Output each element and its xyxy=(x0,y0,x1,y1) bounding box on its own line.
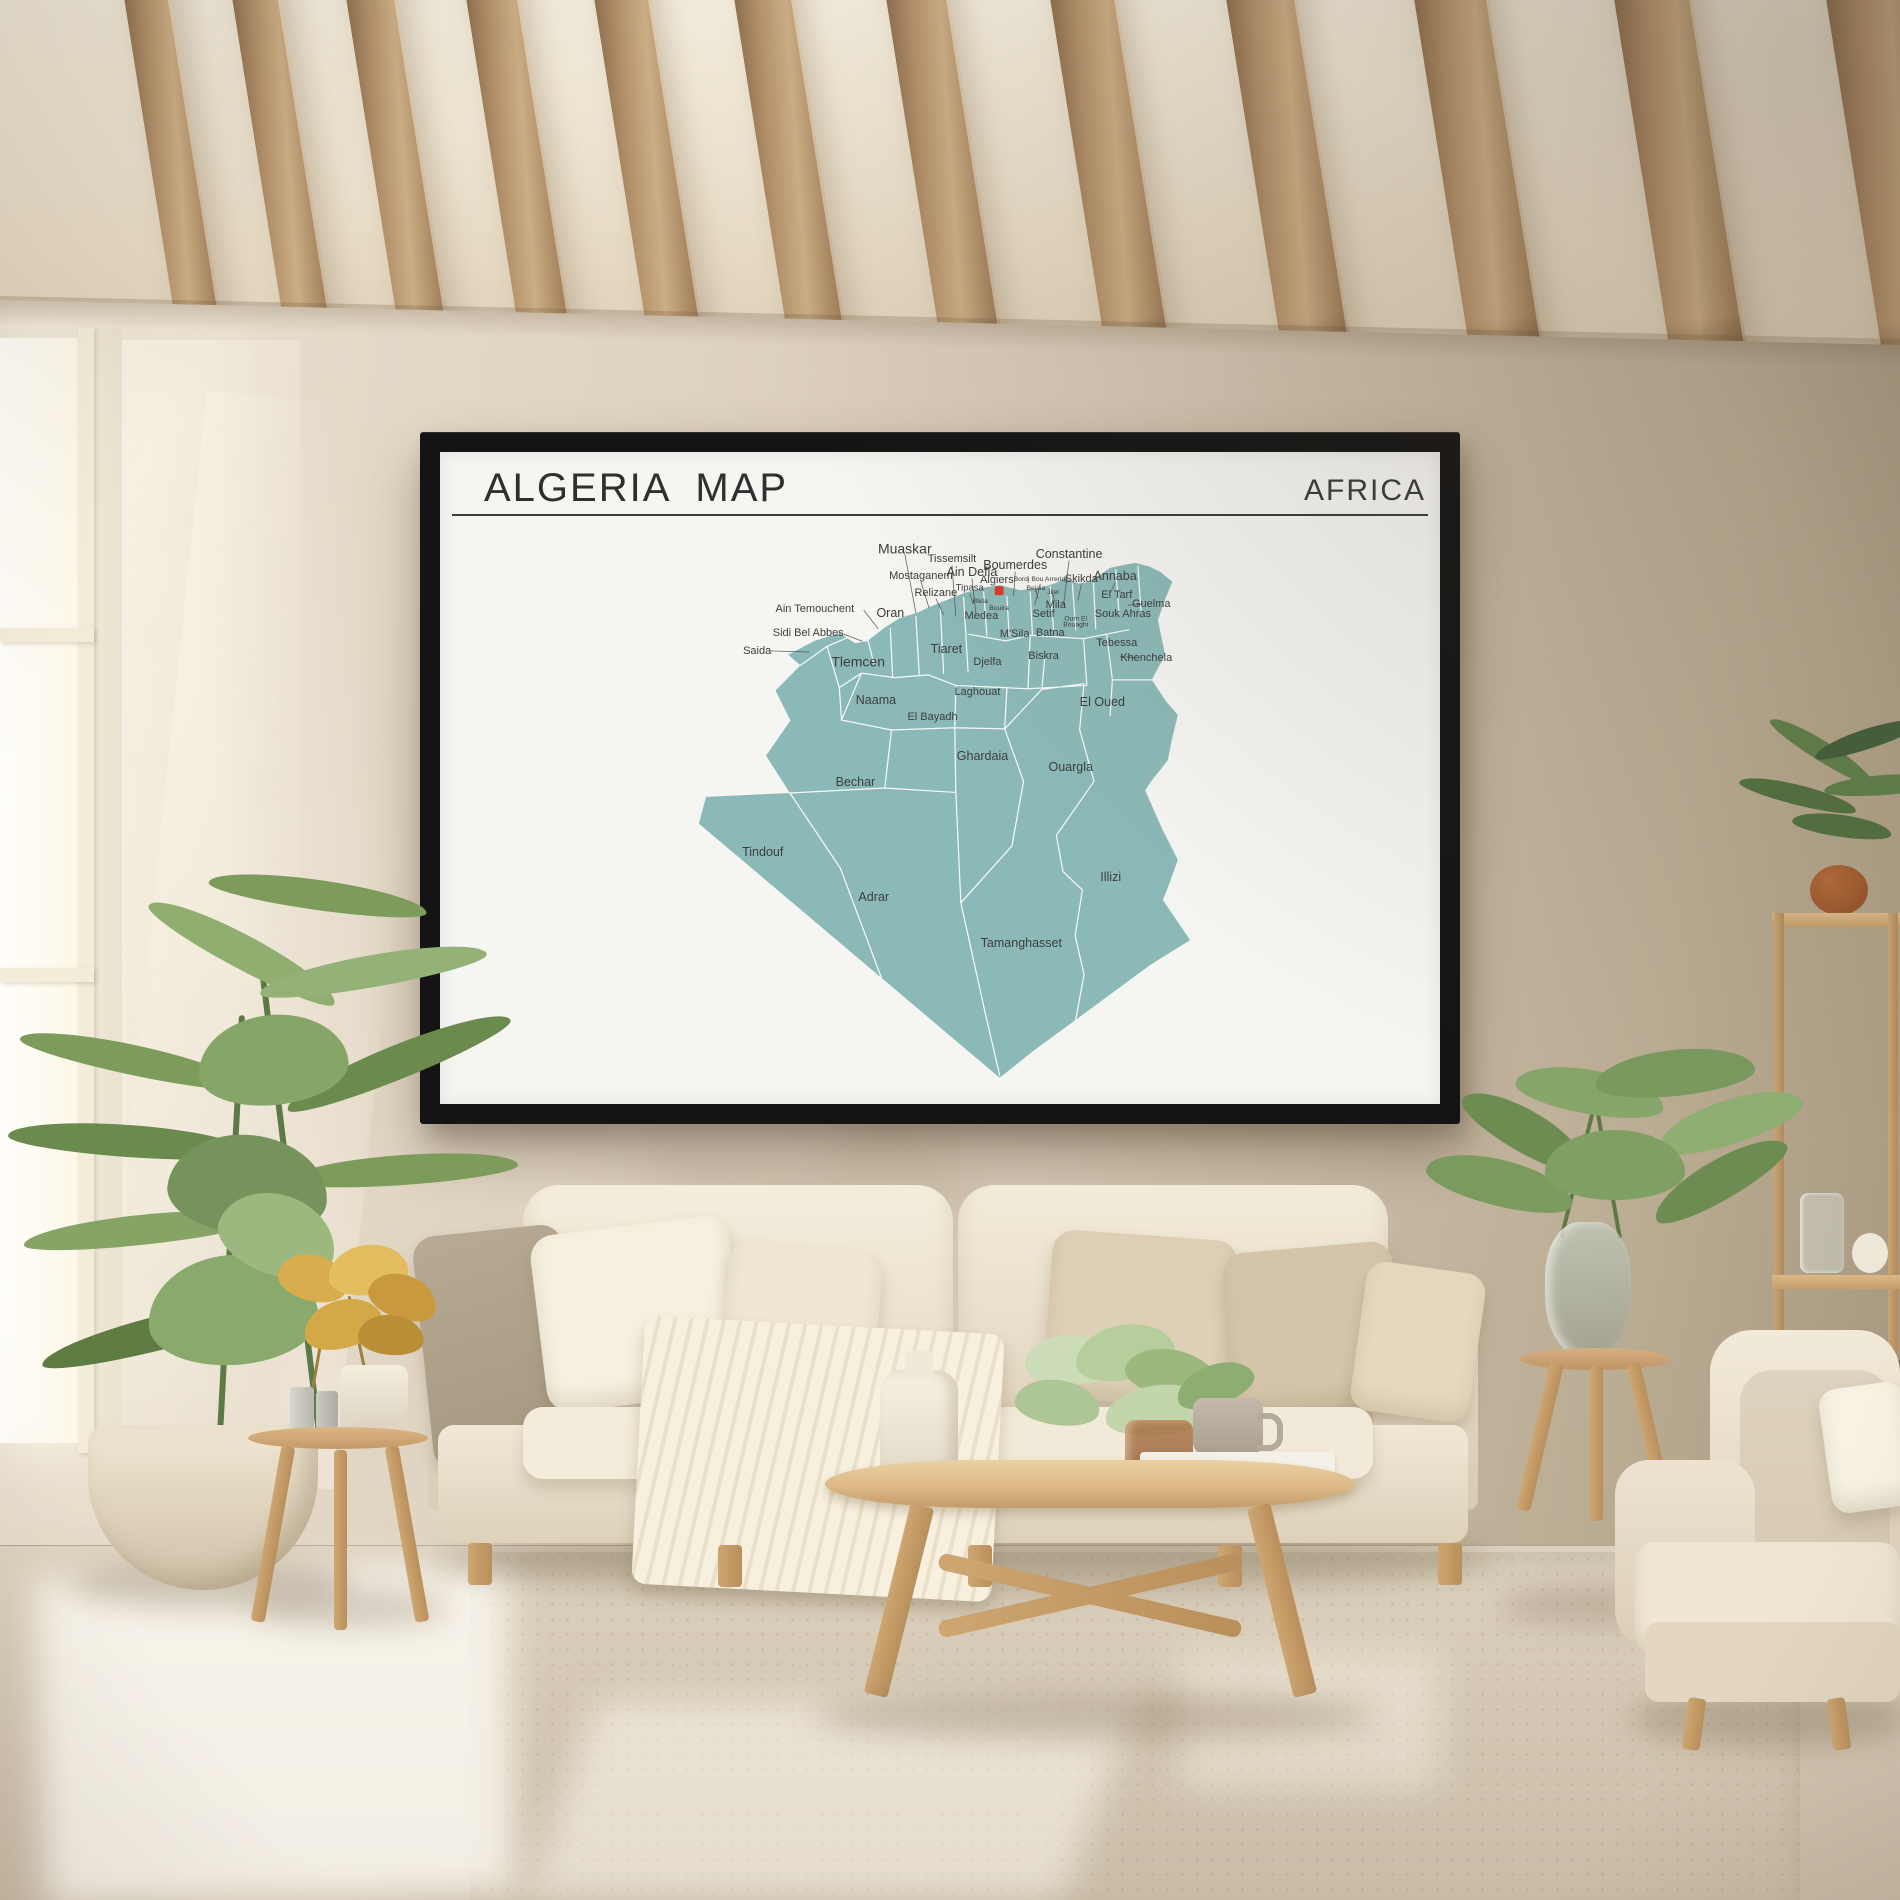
map-label-oran: Oran xyxy=(876,608,904,620)
map-label-tlemcen: Tlemcen xyxy=(831,655,885,668)
armchair-leg xyxy=(1826,1697,1851,1751)
armchair-skirt xyxy=(1645,1622,1900,1702)
map-label-muaskar: Muaskar xyxy=(878,543,932,556)
map-label-adrar: Adrar xyxy=(858,892,889,904)
map-label-jijel: Jijel xyxy=(1047,590,1059,596)
plant-leaf xyxy=(1791,808,1893,844)
ceiling-beam xyxy=(1409,0,1545,363)
map-label-relizane: Relizane xyxy=(914,588,957,598)
living-room-scene: ALGERIA MAP AFRICA MuaskarTissemsiltAin … xyxy=(0,0,1900,1900)
shelf-board xyxy=(1772,913,1900,927)
map-label-ain-temouchent: Ain Temouchent xyxy=(776,604,855,614)
decor-sphere xyxy=(1852,1233,1888,1273)
coffee-table-shadow xyxy=(815,1693,1375,1739)
map-label-boumerdes: Boumerdes xyxy=(983,560,1047,572)
side-table-leg xyxy=(385,1445,430,1623)
map-label-el-bayadh: El Bayadh xyxy=(907,712,957,722)
side-table-top xyxy=(248,1427,428,1449)
sofa-leg xyxy=(718,1545,742,1587)
map-label-saida: Saida xyxy=(743,646,771,656)
mug-handle xyxy=(1257,1413,1283,1451)
map-label-algiers: Algiers xyxy=(980,574,1014,584)
armchair-leg xyxy=(1681,1697,1706,1751)
coffee-table-top xyxy=(825,1460,1355,1508)
ceiling-beam xyxy=(1609,0,1748,364)
map-label-tindouf: Tindouf xyxy=(742,847,783,859)
metal-cup xyxy=(316,1391,338,1429)
map-label-naama: Naama xyxy=(856,695,896,707)
poster-region-label: AFRICA xyxy=(1304,474,1426,508)
map-labels-layer: MuaskarTissemsiltAin DeflaBoumerdesConst… xyxy=(695,545,1250,1080)
terracotta-pot xyxy=(1810,865,1868,915)
map-label-el-tarf: El Tarf xyxy=(1101,590,1132,600)
map-label-tiaret: Tiaret xyxy=(931,644,963,656)
map-label-biskra: Biskra xyxy=(1028,651,1059,661)
coffee-table xyxy=(825,1325,1355,1715)
stool-leg xyxy=(1516,1362,1563,1511)
algeria-map: MuaskarTissemsiltAin DeflaBoumerdesConst… xyxy=(695,545,1250,1080)
stool-leg xyxy=(1590,1366,1603,1521)
map-label-m-sila: M'Sila xyxy=(1000,629,1030,639)
ceiling-beam xyxy=(589,0,707,362)
poster-title: ALGERIA MAP xyxy=(484,466,788,511)
window-frame-horizontal xyxy=(0,628,94,642)
metal-cup xyxy=(290,1387,314,1429)
ceiling-beam xyxy=(1045,0,1173,363)
map-label-djelfa: Djelfa xyxy=(973,657,1001,667)
glass-vase xyxy=(1800,1193,1844,1273)
map-label-laghouat: Laghouat xyxy=(955,687,1001,697)
poster-paper: ALGERIA MAP AFRICA MuaskarTissemsiltAin … xyxy=(440,452,1440,1104)
side-table-leg xyxy=(251,1445,296,1623)
map-label-khenchela: Khenchela xyxy=(1120,653,1172,663)
plant-leaf xyxy=(1593,1042,1757,1104)
poster-divider-line xyxy=(452,514,1428,516)
map-label-bechar: Bechar xyxy=(836,777,876,789)
map-label-constantine: Constantine xyxy=(1036,549,1103,561)
map-label-medea: Medea xyxy=(965,611,999,621)
map-label-batna: Batna xyxy=(1036,628,1065,638)
map-label-ghardaia: Ghardaia xyxy=(957,751,1008,763)
window-glass xyxy=(0,338,80,1443)
map-label-souk-ahras: Souk Ahras xyxy=(1095,609,1151,619)
sofa-leg xyxy=(1438,1543,1462,1585)
map-label-bordj-bou-arreridj: Bordj Bou Arreridj xyxy=(1014,576,1067,582)
map-label-mostaganem: Mostaganem xyxy=(889,571,953,581)
map-label-illizi: Illizi xyxy=(1100,872,1121,884)
map-label-setif: Setif xyxy=(1033,609,1055,619)
map-label-blida: Blida xyxy=(973,599,988,605)
sofa-leg xyxy=(468,1543,492,1585)
map-label-annaba: Annaba xyxy=(1094,571,1137,583)
side-table-leg xyxy=(334,1450,347,1630)
map-label-ouargla: Ouargla xyxy=(1048,762,1092,774)
map-label-tissemsilt: Tissemsilt xyxy=(928,554,976,564)
ceiling-beam xyxy=(1221,0,1353,363)
throw-pillow xyxy=(1348,1259,1488,1424)
map-label-bouira: Bouira xyxy=(989,606,1009,612)
ceiling-beam xyxy=(881,0,1005,362)
coffee-table-leg xyxy=(864,1503,934,1698)
ceiling-beam xyxy=(1821,0,1900,364)
armchair xyxy=(1615,1290,1900,1750)
map-label-tamanghasset: Tamanghasset xyxy=(981,938,1062,950)
side-table xyxy=(248,1245,438,1625)
ceramic-mug xyxy=(1193,1398,1263,1456)
coffee-table-leg xyxy=(1247,1503,1317,1698)
map-label-tebessa: Tebessa xyxy=(1096,638,1137,648)
ceiling-beam xyxy=(729,0,850,362)
map-label-bejaia: Bejaia xyxy=(1026,586,1045,592)
white-planter xyxy=(340,1365,408,1429)
map-label-sidi-bel-abbes: Sidi Bel Abbes xyxy=(773,628,844,638)
lantern-finial xyxy=(905,1350,933,1376)
framed-map-poster: ALGERIA MAP AFRICA MuaskarTissemsiltAin … xyxy=(420,432,1460,1124)
map-label-el-oued: El Oued xyxy=(1080,697,1125,709)
